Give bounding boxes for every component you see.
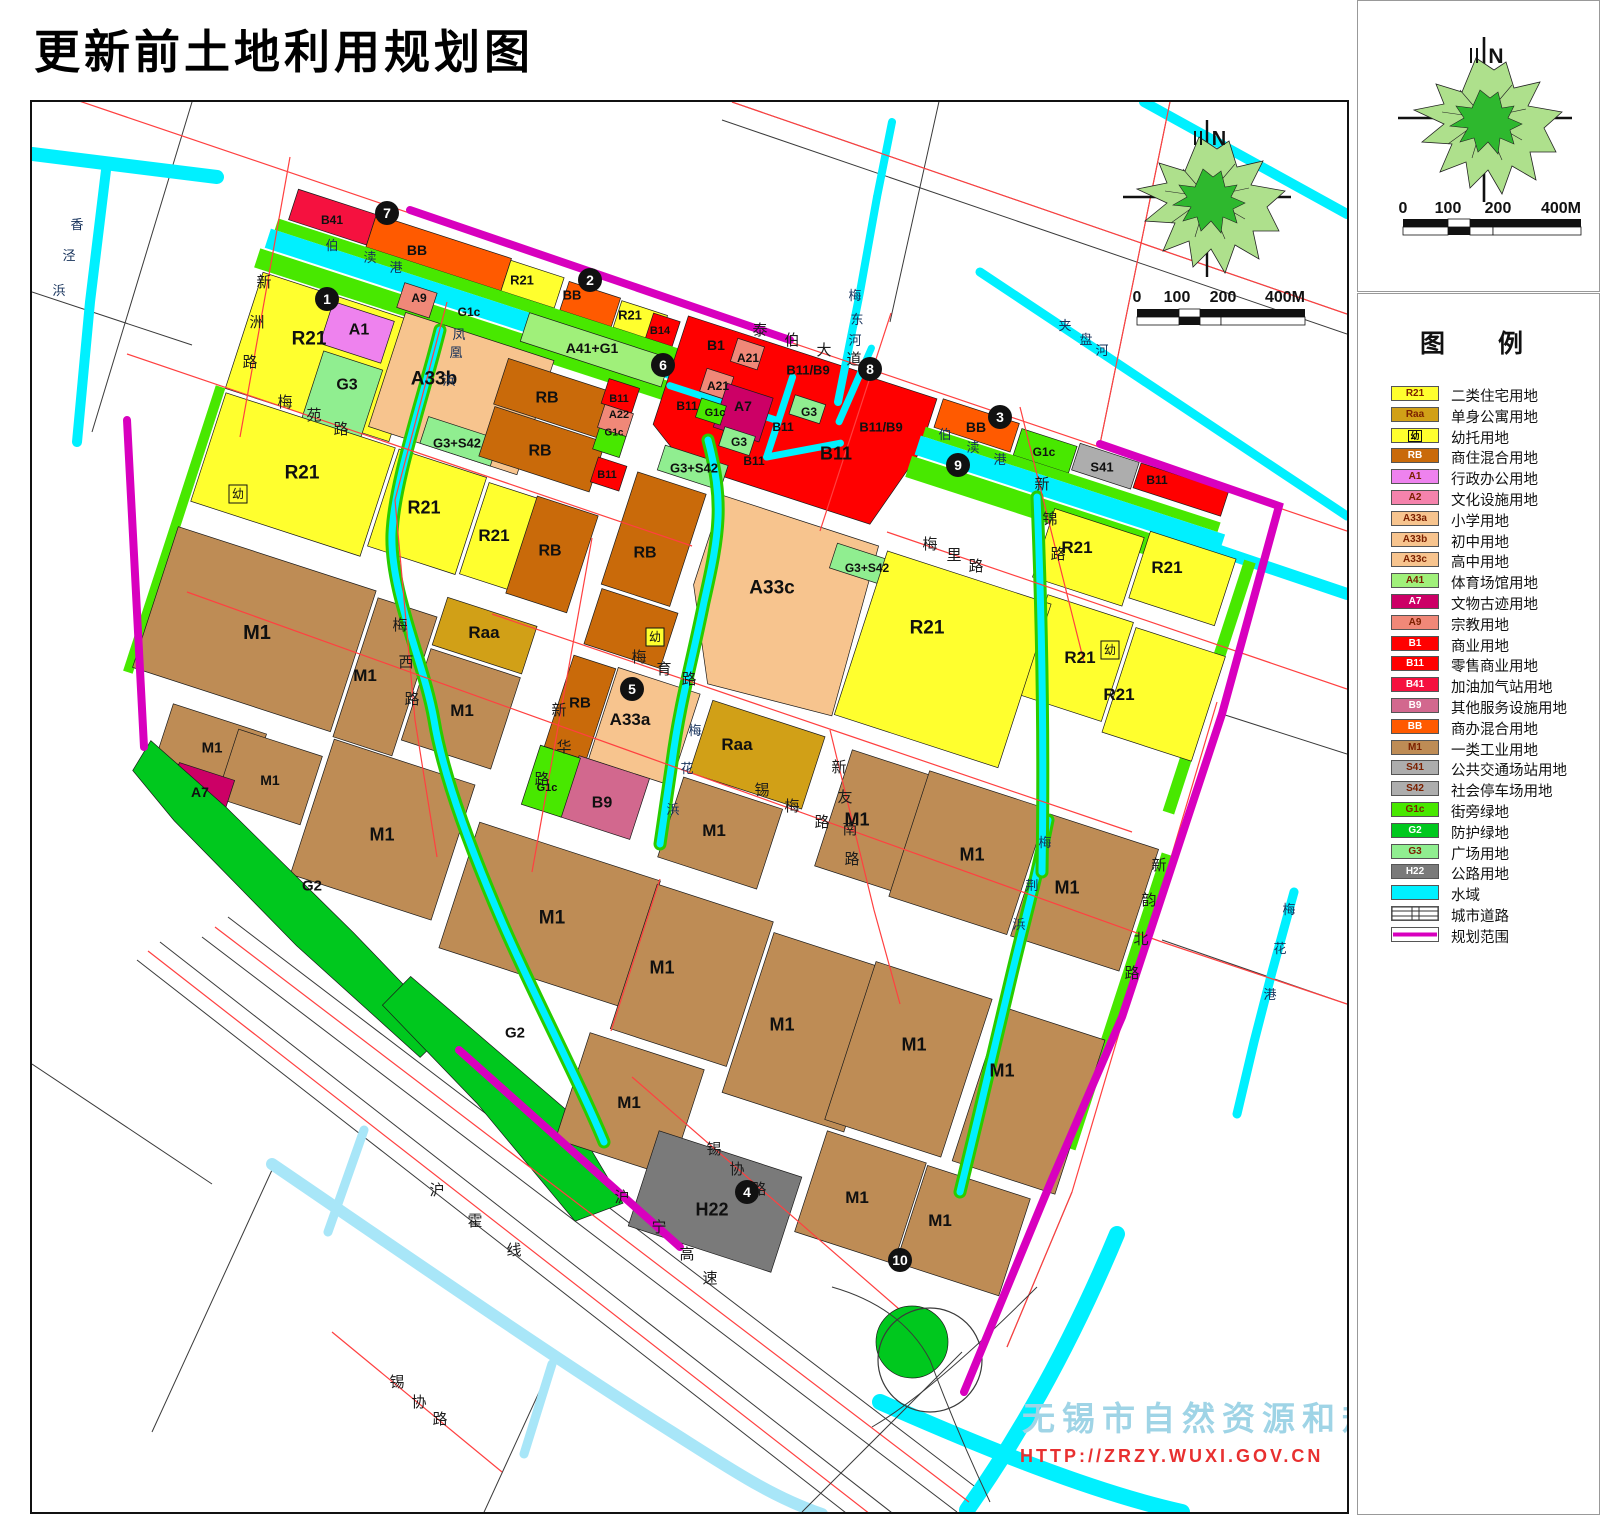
legend-row: 幼幼托用地 — [1358, 426, 1599, 447]
legend-label: 加油加气站用地 — [1451, 676, 1553, 697]
north-compass-panel: N 0 100 200 400M — [1357, 0, 1600, 292]
legend-label: 小学用地 — [1451, 510, 1509, 531]
parcel-label: R21 — [910, 618, 945, 639]
legend-kid-code: 幼 — [1408, 430, 1421, 442]
parcel-label: M1 — [617, 1093, 641, 1112]
parcel-label: A21 — [737, 351, 759, 365]
scale-tick: 100 — [1435, 200, 1462, 217]
parcel-label: G2 — [505, 1024, 525, 1041]
panel-scale-bar: 0 100 200 400M — [1399, 200, 1581, 235]
legend-row: Raa单身公寓用地 — [1358, 405, 1599, 426]
river-label: 河 — [848, 333, 861, 348]
legend-row: A41体育场馆用地 — [1358, 571, 1599, 592]
legend-panel: 图 例 R21二类住宅用地Raa单身公寓用地幼幼托用地RB商住混合用地A1行政办… — [1357, 293, 1600, 1515]
map-marker-number: 1 — [323, 291, 331, 307]
legend-title: 图 例 — [1358, 324, 1599, 360]
parcel-label: RB — [535, 390, 558, 407]
road-label: 新 — [831, 759, 846, 776]
river-label: 荆 — [1025, 878, 1038, 893]
legend-swatch: G2 — [1391, 823, 1439, 838]
legend-label: 行政办公用地 — [1451, 468, 1538, 489]
kindergarten-label: 幼 — [1104, 643, 1116, 657]
road-label: 梅 — [631, 649, 646, 666]
parcel-label: G2 — [302, 877, 322, 894]
legend-row: B41加油加气站用地 — [1358, 675, 1599, 696]
legend-swatch: 幼 — [1391, 428, 1439, 443]
road-label: 育 — [656, 661, 671, 678]
road-label: 西 — [398, 654, 413, 671]
parcel-label: M1 — [901, 1034, 926, 1054]
map-marker-number: 5 — [628, 681, 636, 697]
road-icon — [1392, 907, 1438, 920]
legend-row: B9其他服务设施用地 — [1358, 696, 1599, 717]
legend-label: 文化设施用地 — [1451, 489, 1538, 510]
parcel-label: B11 — [1146, 473, 1168, 487]
legend-label: 文物古迹用地 — [1451, 593, 1538, 614]
river-label: 泾 — [62, 248, 75, 263]
road-label: 路 — [1124, 965, 1139, 982]
parcel-label: A1 — [349, 322, 370, 339]
legend-row: RB商住混合用地 — [1358, 446, 1599, 467]
river-label: 夹 — [1058, 318, 1071, 333]
river-label: 梅 — [1282, 902, 1295, 917]
map-marker-number: 9 — [954, 457, 962, 473]
road-label: 新 — [551, 702, 566, 719]
legend-label: 广场用地 — [1451, 843, 1509, 864]
page-title: 更新前土地利用规划图 — [34, 16, 534, 82]
scale-tick: 400M — [1541, 200, 1581, 217]
road-label: 沪 — [614, 1189, 629, 1206]
river-label: 河 — [1095, 343, 1108, 358]
legend-label: 社会停车场用地 — [1451, 780, 1553, 801]
river-label: 花 — [1273, 941, 1286, 956]
parcel-label: M1 — [260, 772, 280, 788]
river-label: 伯 — [938, 427, 951, 442]
legend-swatch: A33a — [1391, 511, 1439, 526]
inner-scale-tick: 100 — [1164, 289, 1191, 306]
road-label: 梅 — [277, 394, 292, 411]
parcel-label: M1 — [243, 622, 271, 644]
parcel-label: G1c — [1033, 445, 1056, 459]
road-label: 路 — [844, 851, 859, 868]
parcel-label: R21 — [285, 463, 320, 484]
legend-label: 公路用地 — [1451, 863, 1509, 884]
parcel-label: M1 — [539, 908, 566, 929]
river-label: 凤 — [452, 327, 465, 342]
parcel-label: A7 — [191, 784, 209, 800]
parcel-label: M1 — [649, 957, 674, 977]
river-label: 浜 — [1012, 917, 1025, 932]
road-label: 南 — [842, 821, 857, 838]
legend-swatch: H22 — [1391, 864, 1439, 879]
watermark-url: HTTP://ZRZY.WUXI.GOV.CN — [1020, 1446, 1323, 1466]
legend-row: R21二类住宅用地 — [1358, 384, 1599, 405]
legend-row: H22公路用地 — [1358, 862, 1599, 883]
parcel-label: Raa — [468, 623, 500, 642]
parcel-label: G3 — [731, 435, 747, 449]
inner-compass-n: N — [1212, 128, 1226, 150]
parcel-label: A33c — [749, 578, 795, 599]
river-label: 梅 — [848, 288, 861, 303]
legend-row: 水域 — [1358, 883, 1599, 904]
legend-swatch: A33b — [1391, 532, 1439, 547]
legend-label: 宗教用地 — [1451, 614, 1509, 635]
river-label: 港 — [1263, 987, 1276, 1002]
parcel-label: M1 — [369, 824, 394, 844]
parcel-label: M1 — [1054, 877, 1079, 897]
legend-row: G3广场用地 — [1358, 842, 1599, 863]
legend-label: 规划范围 — [1451, 926, 1509, 947]
parcel-label: BB — [966, 419, 986, 435]
parcel-label: A41+G1 — [566, 340, 619, 356]
parcel-label: R21 — [478, 526, 509, 545]
parcel-label: A21 — [707, 379, 729, 393]
map-marker-number: 4 — [743, 1184, 751, 1200]
river-label: 凰 — [449, 345, 462, 360]
road-label: 协 — [729, 1161, 744, 1178]
road-label: 高 — [679, 1246, 694, 1263]
legend-swatch: G3 — [1391, 844, 1439, 859]
parcel-label: G3 — [801, 405, 817, 419]
parcel-label: A33a — [610, 710, 651, 729]
road-label: 韵 — [1141, 892, 1156, 909]
parcel-label: B11 — [597, 469, 617, 481]
parcel-label: R21 — [1103, 685, 1134, 704]
legend-row: G2防护绿地 — [1358, 821, 1599, 842]
parcel-label: G3+S42 — [433, 436, 481, 451]
river-label: 浜 — [666, 802, 679, 817]
parcel-label: RB — [633, 545, 656, 562]
parcel-label: B11 — [743, 454, 765, 468]
legend-swatch: RB — [1391, 448, 1439, 463]
parcel-label: A7 — [734, 398, 752, 414]
road-label: 路 — [814, 814, 829, 831]
map-frame: N 0100200400M B41BBR21BBR21B14A9G1cR21A1… — [30, 100, 1349, 1514]
legend-row: A33b初中用地 — [1358, 530, 1599, 551]
road-label: 沪 — [429, 1182, 444, 1199]
map-marker-number: 8 — [866, 361, 874, 377]
parcel-label: R21 — [1151, 558, 1182, 577]
river-label: 花 — [680, 761, 693, 776]
road-label: 路 — [432, 1411, 447, 1428]
legend-row: S41公共交通场站用地 — [1358, 758, 1599, 779]
road-label: 北 — [1133, 931, 1148, 948]
parcel-label: S41 — [1090, 460, 1113, 475]
legend-row: 城市道路 — [1358, 904, 1599, 925]
kindergarten-label: 幼 — [232, 487, 244, 501]
parcel-label: RB — [569, 694, 591, 711]
parcel-label: M1 — [450, 701, 474, 720]
legend-swatch: A33c — [1391, 552, 1439, 567]
road-label: 线 — [506, 1242, 521, 1259]
legend-swatch: Raa — [1391, 407, 1439, 422]
legend-label: 其他服务设施用地 — [1451, 697, 1567, 718]
river-label: 港 — [389, 260, 402, 275]
legend-row: S42社会停车场用地 — [1358, 779, 1599, 800]
legend-row: BB商办混合用地 — [1358, 717, 1599, 738]
legend-row: A1行政办公用地 — [1358, 467, 1599, 488]
river-label: 梅 — [1038, 835, 1051, 850]
road-label: 路 — [404, 691, 419, 708]
river-label: 渎 — [966, 440, 979, 455]
parcel-label: Raa — [721, 735, 753, 754]
legend-swatch: B1 — [1391, 636, 1439, 651]
parcel-label: M1 — [989, 1060, 1014, 1080]
parcel-label: BB — [407, 242, 427, 258]
parcel-label: B14 — [650, 325, 671, 337]
road-label: 锡 — [389, 1374, 404, 1391]
parcel-label: G3+S42 — [670, 461, 718, 476]
map-marker-number: 2 — [586, 272, 594, 288]
parcel-label: M1 — [845, 1188, 869, 1207]
parcel-label: B9 — [592, 795, 613, 812]
parcel-label: B11/B9 — [859, 420, 902, 435]
legend-swatch: B11 — [1391, 656, 1439, 671]
parcel-label: RB — [538, 543, 561, 560]
legend-row: G1c街旁绿地 — [1358, 800, 1599, 821]
legend-row: A2文化设施用地 — [1358, 488, 1599, 509]
legend-swatch: R21 — [1391, 386, 1439, 401]
parcel-label: G1c — [458, 305, 481, 319]
legend-label: 水域 — [1451, 884, 1480, 905]
legend-label: 单身公寓用地 — [1451, 406, 1538, 427]
road-label: 里 — [946, 547, 961, 564]
parcel-label: B11/B9 — [786, 363, 829, 378]
legend-swatch: A2 — [1391, 490, 1439, 505]
river-label: 港 — [993, 452, 1006, 467]
legend-label: 体育场馆用地 — [1451, 572, 1538, 593]
panel-compass: N — [1398, 37, 1572, 202]
road-label: 速 — [702, 1270, 717, 1287]
legend-row: B11零售商业用地 — [1358, 654, 1599, 675]
parcel-label: M1 — [702, 821, 726, 840]
parcel-label: R21 — [407, 497, 440, 517]
map-marker-number: 6 — [659, 357, 667, 373]
legend-label: 幼托用地 — [1451, 427, 1509, 448]
road-label: 友 — [837, 789, 852, 806]
watermark-org: 无锡市自然资源和规划局 — [1022, 1400, 1347, 1437]
boundary-icon — [1392, 928, 1438, 941]
land-use-plan-page: { "title": "更新前土地利用规划图", "compass": {"n"… — [0, 0, 1600, 1515]
road-label: 锦 — [1042, 511, 1057, 528]
legend-row: A7文物古迹用地 — [1358, 592, 1599, 613]
road-label: 协 — [411, 1394, 426, 1411]
road-label: 泰 — [752, 322, 767, 339]
legend-swatch: B9 — [1391, 698, 1439, 713]
road-label: 梅 — [392, 617, 407, 634]
road-label: 华 — [556, 739, 571, 756]
legend-label: 高中用地 — [1451, 551, 1509, 572]
legend-swatch: A9 — [1391, 615, 1439, 630]
kindergarten-label: 幼 — [649, 630, 661, 644]
road-label: 路 — [968, 558, 983, 575]
legend-row: A33a小学用地 — [1358, 509, 1599, 530]
legend-swatch: M1 — [1391, 740, 1439, 755]
legend-label: 初中用地 — [1451, 531, 1509, 552]
scale-tick: 200 — [1485, 200, 1512, 217]
map-marker-number: 7 — [383, 205, 391, 221]
legend-label: 商办混合用地 — [1451, 718, 1538, 739]
road-label: 新 — [1151, 857, 1166, 874]
river-label: 渎 — [363, 250, 376, 265]
legend-label: 二类住宅用地 — [1451, 385, 1538, 406]
parcel-label: G3 — [336, 377, 357, 394]
parcel-label: H22 — [695, 1199, 728, 1219]
parcel-label: RB — [528, 443, 551, 460]
legend-label: 防护绿地 — [1451, 822, 1509, 843]
legend-swatch: S42 — [1391, 781, 1439, 796]
parcel-label: B41 — [321, 213, 343, 227]
inner-scale-tick: 400M — [1265, 289, 1305, 306]
parcel-label: BB — [563, 288, 582, 303]
legend-swatch — [1391, 927, 1439, 942]
parcel-label: M1 — [353, 666, 377, 685]
road-label: 梅 — [784, 798, 799, 815]
parcel-label: R21 — [618, 308, 642, 323]
legend-label: 零售商业用地 — [1451, 655, 1538, 676]
parcel-label: R21 — [292, 329, 327, 350]
parcel-label: G1c — [605, 428, 624, 439]
river-label: 浜 — [442, 373, 455, 388]
inner-scale-tick: 0 — [1133, 289, 1142, 306]
river-label: 盘 — [1079, 332, 1092, 347]
legend-row: A33c高中用地 — [1358, 550, 1599, 571]
road-label: 新 — [256, 274, 271, 291]
panel-compass-n: N — [1488, 45, 1503, 68]
road-label: 伯 — [784, 332, 799, 349]
parcel-label: M1 — [202, 739, 223, 756]
river-label: 伯 — [325, 238, 338, 253]
road-label: 苑 — [306, 407, 321, 424]
legend-swatch: G1c — [1391, 802, 1439, 817]
road-label: 路 — [1050, 546, 1065, 563]
parcel-label: R21 — [510, 273, 534, 288]
legend-label: 街旁绿地 — [1451, 801, 1509, 822]
road-label: 梅 — [922, 536, 937, 553]
legend-swatch: A41 — [1391, 573, 1439, 588]
river-label: 梅 — [688, 723, 701, 738]
map-marker-number: 10 — [892, 1252, 908, 1268]
parcel-label: B11 — [609, 393, 629, 405]
legend-label: 城市道路 — [1451, 905, 1509, 926]
legend-label: 商业用地 — [1451, 635, 1509, 656]
road-label: 路 — [333, 421, 348, 438]
inner-scale-tick: 200 — [1210, 289, 1237, 306]
watermark: 无锡市自然资源和规划局 HTTP://ZRZY.WUXI.GOV.CN — [1020, 1400, 1347, 1466]
legend-swatch: S41 — [1391, 760, 1439, 775]
road-label: 大 — [816, 342, 831, 359]
legend-row: 规划范围 — [1358, 925, 1599, 946]
legend-swatch — [1391, 906, 1439, 921]
legend-row: B1商业用地 — [1358, 634, 1599, 655]
river-label: 浜 — [52, 283, 65, 298]
river-label: 香 — [70, 217, 83, 232]
parcel-label: R21 — [1064, 648, 1095, 667]
parcel-label: B11 — [772, 420, 794, 434]
map-canvas: N 0100200400M B41BBR21BBR21B14A9G1cR21A1… — [32, 102, 1347, 1512]
parcel-label: M1 — [959, 844, 984, 864]
parcel-label: M1 — [769, 1014, 794, 1034]
legend-label: 商住混合用地 — [1451, 447, 1538, 468]
road-label: 锡 — [754, 782, 769, 799]
legend-swatch: B41 — [1391, 677, 1439, 692]
parcel-label: G3+S42 — [845, 561, 890, 575]
map-marker-number: 3 — [996, 409, 1004, 425]
road-label: 霍 — [467, 1213, 482, 1230]
road-label: 洲 — [249, 314, 264, 331]
road-label: 路 — [534, 771, 549, 788]
road-label: 路 — [242, 354, 257, 371]
parcel-label: B11 — [820, 443, 852, 463]
road-label: 锡 — [706, 1141, 721, 1158]
parcel-label: B11 — [676, 399, 698, 413]
parcel-label: A9 — [411, 291, 427, 305]
parcel-label: M1 — [928, 1211, 952, 1230]
parcel-label: R21 — [1061, 538, 1092, 557]
parcel-label: B1 — [707, 337, 725, 353]
river-label: 东 — [850, 312, 863, 327]
legend-row: A9宗教用地 — [1358, 613, 1599, 634]
road-label: 宁 — [651, 1219, 666, 1236]
legend-label: 公共交通场站用地 — [1451, 759, 1567, 780]
legend-swatch — [1391, 885, 1439, 900]
parcel-label: A22 — [609, 409, 629, 421]
legend-row: M1一类工业用地 — [1358, 738, 1599, 759]
parcel-label: G1c — [705, 407, 726, 419]
legend-label: 一类工业用地 — [1451, 739, 1538, 760]
legend-swatch: A7 — [1391, 594, 1439, 609]
legend-swatch: BB — [1391, 719, 1439, 734]
scale-tick: 0 — [1399, 200, 1408, 217]
road-label: 新 — [1034, 476, 1049, 493]
legend-swatch: A1 — [1391, 469, 1439, 484]
road-label: 路 — [681, 671, 696, 688]
